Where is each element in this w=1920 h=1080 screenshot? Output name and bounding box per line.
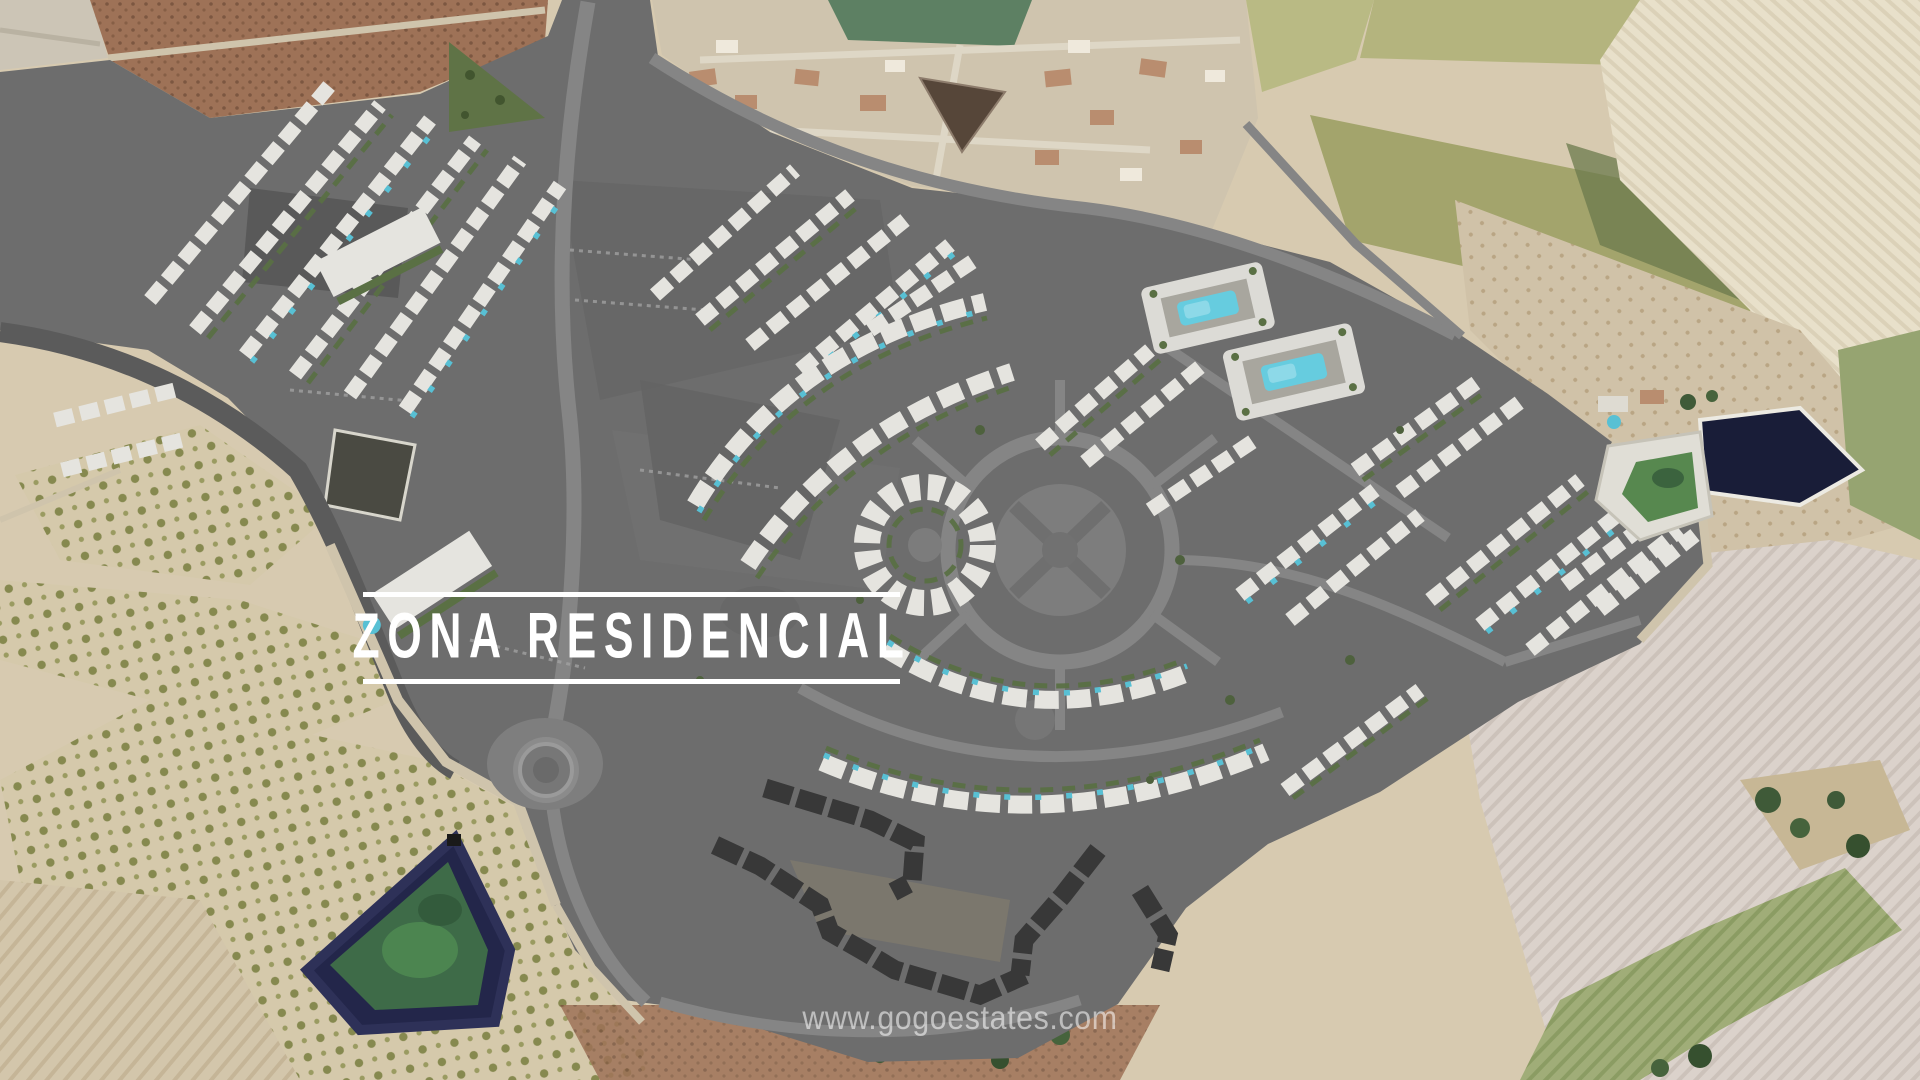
zone-label: ZONA RESIDENCIAL (352, 599, 911, 673)
banner-top-rule (363, 592, 900, 597)
aerial-masterplan-image: ZONA RESIDENCIAL www.gogoestates.com (0, 0, 1920, 1080)
watermark-url: www.gogoestates.com (802, 999, 1117, 1037)
banner-bottom-rule (363, 679, 900, 684)
zone-banner: ZONA RESIDENCIAL (363, 592, 900, 684)
aerial-scene (0, 0, 1920, 1080)
roundabout (487, 718, 603, 810)
